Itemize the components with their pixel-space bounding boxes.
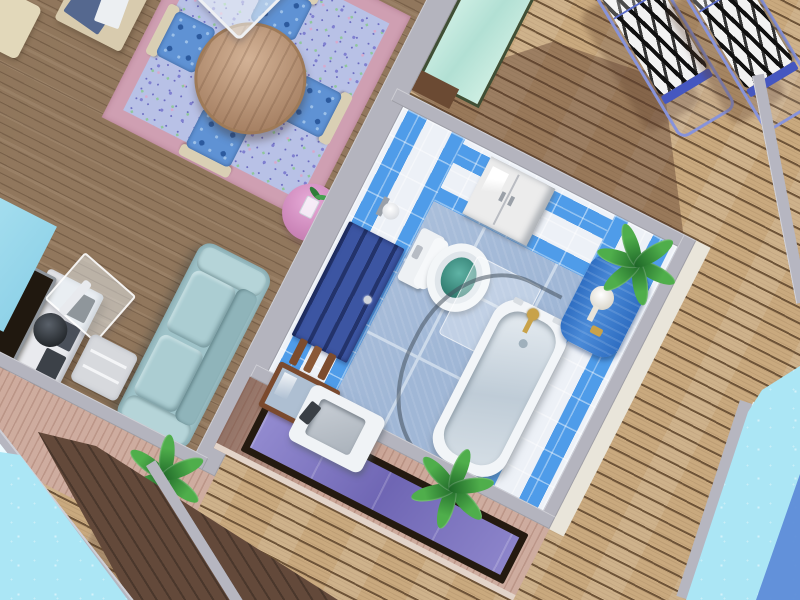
ottoman-seam: [90, 349, 127, 370]
ottoman-seam: [82, 364, 119, 385]
rack-bar: [317, 352, 337, 381]
shower-handle: [589, 325, 603, 338]
mirror-sheen: [274, 372, 297, 400]
game-viewport: [0, 0, 800, 600]
shower-stem: [587, 305, 600, 322]
door-handle[interactable]: [362, 294, 373, 305]
